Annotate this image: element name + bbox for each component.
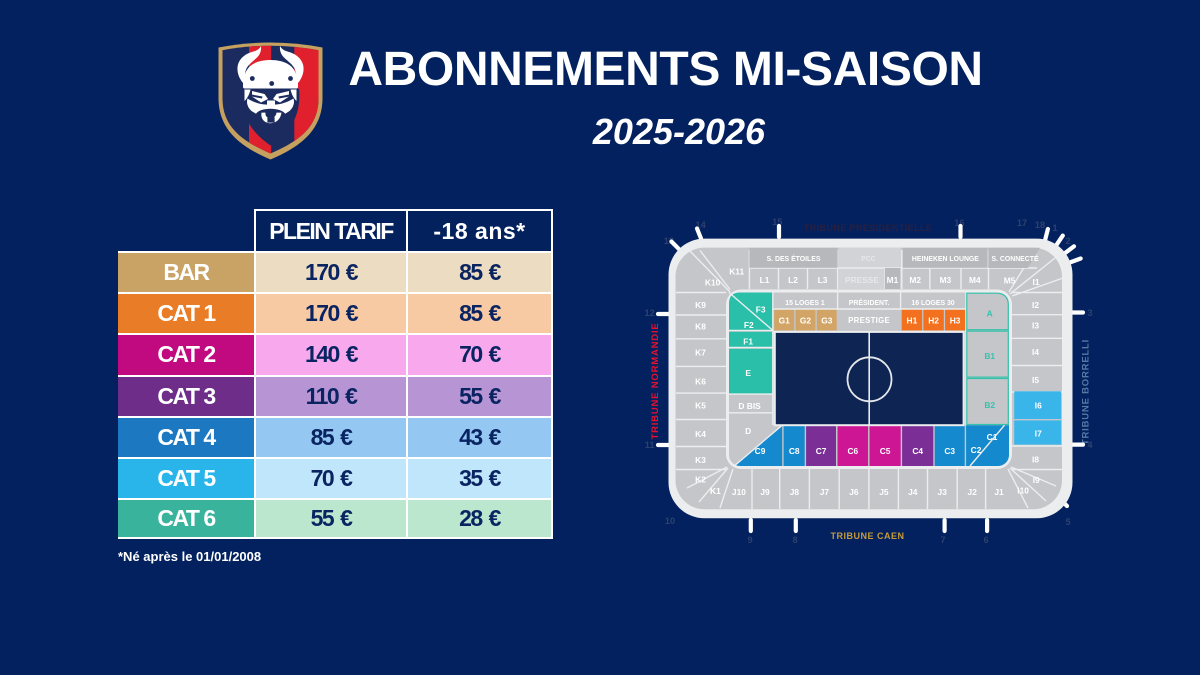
svg-text:D: D xyxy=(745,426,751,436)
svg-text:8: 8 xyxy=(792,535,797,545)
svg-text:PRÉSIDENT.: PRÉSIDENT. xyxy=(849,298,890,307)
svg-text:J9: J9 xyxy=(760,487,770,497)
svg-text:K10: K10 xyxy=(705,278,721,288)
svg-text:I4: I4 xyxy=(1032,347,1039,357)
svg-text:HEINEKEN LOUNGE: HEINEKEN LOUNGE xyxy=(912,256,979,263)
svg-text:I6: I6 xyxy=(1035,400,1042,410)
svg-text:K5: K5 xyxy=(695,401,706,411)
svg-text:J1: J1 xyxy=(994,487,1004,497)
svg-text:I10: I10 xyxy=(1017,486,1029,496)
svg-text:J8: J8 xyxy=(790,487,800,497)
svg-text:J6: J6 xyxy=(849,487,859,497)
svg-text:G3: G3 xyxy=(821,316,833,326)
svg-text:H2: H2 xyxy=(928,316,939,326)
svg-text:6: 6 xyxy=(983,535,988,545)
svg-text:I2: I2 xyxy=(1032,300,1039,310)
svg-text:C9: C9 xyxy=(755,446,766,456)
svg-text:12: 12 xyxy=(644,308,654,318)
svg-text:1: 1 xyxy=(1052,223,1057,233)
svg-text:TRIBUNE PRÉSIDENTIELLE: TRIBUNE PRÉSIDENTIELLE xyxy=(804,222,933,233)
svg-text:K3: K3 xyxy=(695,455,706,465)
svg-text:18: 18 xyxy=(1035,220,1045,230)
svg-text:15 LOGES 1: 15 LOGES 1 xyxy=(785,300,825,307)
svg-text:I9: I9 xyxy=(1033,475,1040,485)
svg-text:K7: K7 xyxy=(695,347,706,357)
svg-text:17: 17 xyxy=(1017,218,1027,228)
svg-text:10: 10 xyxy=(665,516,675,526)
svg-text:E: E xyxy=(745,368,751,378)
svg-text:3: 3 xyxy=(1087,308,1092,318)
svg-text:2: 2 xyxy=(1065,236,1070,246)
svg-text:J5: J5 xyxy=(879,487,889,497)
svg-text:M4: M4 xyxy=(969,275,981,285)
svg-text:J4: J4 xyxy=(908,487,918,497)
svg-text:F3: F3 xyxy=(756,305,766,315)
svg-text:B2: B2 xyxy=(984,400,995,410)
svg-text:C8: C8 xyxy=(789,446,800,456)
svg-text:I7: I7 xyxy=(1035,429,1042,439)
svg-text:K6: K6 xyxy=(695,377,706,387)
svg-text:7: 7 xyxy=(940,535,945,545)
svg-text:J3: J3 xyxy=(938,487,948,497)
svg-text:H3: H3 xyxy=(950,316,961,326)
svg-text:F1: F1 xyxy=(743,336,753,346)
svg-text:M3: M3 xyxy=(940,275,952,285)
svg-text:I5: I5 xyxy=(1032,375,1039,385)
svg-text:K4: K4 xyxy=(695,429,706,439)
svg-text:L1: L1 xyxy=(760,275,770,285)
svg-text:C6: C6 xyxy=(847,446,858,456)
svg-text:TRIBUNE CAEN: TRIBUNE CAEN xyxy=(830,531,904,541)
svg-text:PRESSE: PRESSE xyxy=(845,275,879,285)
svg-text:K1: K1 xyxy=(710,486,721,496)
svg-text:I3: I3 xyxy=(1032,321,1039,331)
svg-text:TRIBUNE NORMANDIE: TRIBUNE NORMANDIE xyxy=(650,322,661,439)
svg-text:M1: M1 xyxy=(887,275,899,285)
svg-text:K11: K11 xyxy=(729,267,744,277)
svg-text:M2: M2 xyxy=(909,275,921,285)
svg-text:B1: B1 xyxy=(984,351,995,361)
svg-text:C3: C3 xyxy=(944,446,955,456)
svg-text:PCC: PCC xyxy=(861,256,876,263)
svg-text:J2: J2 xyxy=(968,487,978,497)
svg-text:5: 5 xyxy=(1065,517,1070,527)
svg-text:D BIS: D BIS xyxy=(738,401,761,411)
svg-text:S. DES ÉTOILES: S. DES ÉTOILES xyxy=(767,254,821,263)
svg-text:9: 9 xyxy=(747,535,752,545)
svg-text:I8: I8 xyxy=(1032,454,1039,464)
svg-text:F2: F2 xyxy=(744,320,754,330)
svg-text:J7: J7 xyxy=(820,487,830,497)
svg-text:C1: C1 xyxy=(987,432,998,442)
svg-text:C5: C5 xyxy=(880,446,891,456)
svg-text:A: A xyxy=(987,309,993,319)
svg-text:G1: G1 xyxy=(779,316,791,326)
svg-text:J10: J10 xyxy=(732,487,746,497)
svg-text:L2: L2 xyxy=(788,275,798,285)
svg-text:K9: K9 xyxy=(695,300,706,310)
svg-text:11: 11 xyxy=(645,440,655,450)
svg-text:C2: C2 xyxy=(971,445,982,455)
svg-text:C4: C4 xyxy=(912,446,923,456)
svg-text:I1: I1 xyxy=(1033,277,1040,287)
svg-text:K8: K8 xyxy=(695,321,706,331)
svg-text:16 LOGES 30: 16 LOGES 30 xyxy=(911,300,954,307)
svg-text:S. CONNECTÉ: S. CONNECTÉ xyxy=(991,254,1038,263)
svg-text:PRESTIGE: PRESTIGE xyxy=(848,316,890,325)
svg-text:G2: G2 xyxy=(800,316,812,326)
svg-text:L3: L3 xyxy=(818,275,828,285)
svg-text:M5: M5 xyxy=(1004,276,1016,286)
svg-text:TRIBUNE BORRELLI: TRIBUNE BORRELLI xyxy=(1081,339,1092,445)
svg-text:H1: H1 xyxy=(907,316,918,326)
svg-text:K2: K2 xyxy=(695,474,706,484)
svg-text:C7: C7 xyxy=(816,446,827,456)
